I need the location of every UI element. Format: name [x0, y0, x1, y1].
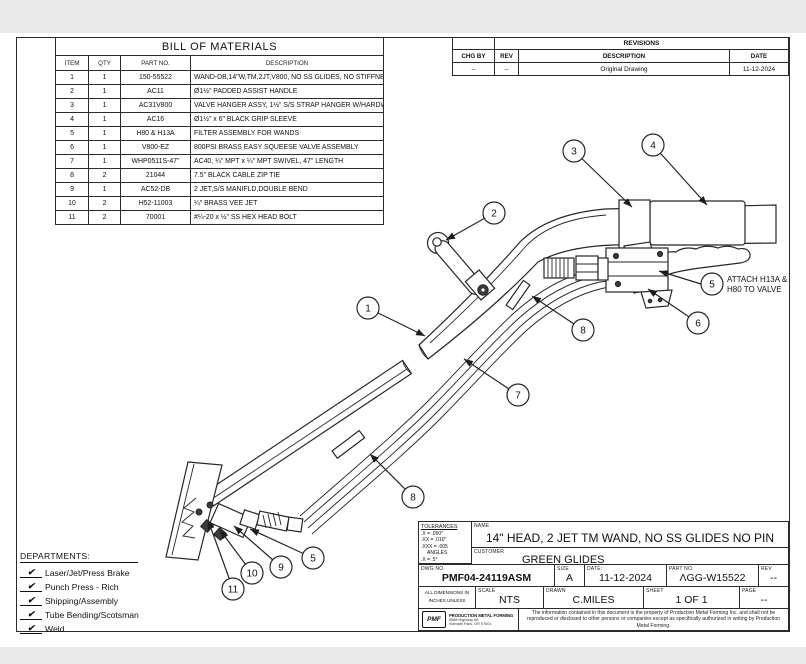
paper-sheet: 1 2 3 4 5 6 7 8 8 5 9 10 11 ATTACH H13A …	[0, 33, 806, 647]
assist-handle	[428, 233, 495, 300]
department-row: ✔Weld	[20, 621, 210, 634]
bom-cell: V800-EZ	[121, 141, 191, 155]
balloon-10: 10	[246, 569, 258, 580]
balloon-3: 3	[571, 147, 577, 158]
bom-cell: #¼-20 x ½" SS HEX HEAD BOLT	[191, 211, 384, 225]
tolerance-line: .X = .5°	[421, 557, 471, 563]
bom-cell: 1	[56, 71, 89, 85]
bom-cell: 2	[56, 85, 89, 99]
bom-cell: 800PSI BRASS EASY SQUEESE VALVE ASSEMBLY	[191, 141, 384, 155]
dims-note-line: ALL DIMENSIONS IN	[419, 590, 475, 595]
revisions-cell: --	[453, 63, 495, 76]
date-cell: DATE: 11-12-2024	[584, 564, 667, 587]
revisions-cell: Original Drawing	[519, 63, 730, 76]
bom-header-desc: DESCRIPTION	[191, 56, 384, 71]
department-row: ✔Laser/Jet/Press Brake	[20, 565, 210, 578]
tolerances-title: TOLERANCES	[421, 524, 471, 530]
bom-cell: 21044	[121, 169, 191, 183]
tolerances-cell: TOLERANCES .X = .050" .XX = .010" .XXX =…	[418, 521, 472, 564]
check-icon: ✔	[20, 568, 42, 578]
bom-cell: WHP0511S-47"	[121, 155, 191, 169]
page-cell: PAGE --	[739, 586, 789, 609]
title-block: TOLERANCES .X = .050" .XX = .010" .XXX =…	[418, 521, 789, 631]
balloon-11: 11	[228, 585, 239, 596]
attach-note-line2: H80 TO VALVE	[727, 285, 782, 294]
dims-note-line: INCHES UNLESS	[419, 598, 475, 603]
balloon-5-right: 5	[709, 280, 715, 291]
bom-cell: ¼" BRASS VEE JET	[191, 197, 384, 211]
bom-cell: AC52-DB	[121, 183, 191, 197]
balloon-9: 9	[278, 563, 284, 574]
balloon-7: 7	[515, 391, 521, 402]
check-icon: ✔	[20, 610, 42, 620]
dimensions-note-cell: ALL DIMENSIONS IN INCHES UNLESS OTHERWIS…	[418, 586, 476, 609]
bom-cell: 10	[56, 197, 89, 211]
part-no-cell: PART NO. ΛGG-W15522	[666, 564, 759, 587]
department-label: Laser/Jet/Press Brake	[45, 568, 130, 578]
drawn-cell: DRAWN C.MILES	[543, 586, 644, 609]
bom-cell: AC16	[121, 113, 191, 127]
grip-sleeve	[650, 201, 745, 245]
bom-cell: 70001	[121, 211, 191, 225]
balloon-8-mid: 8	[410, 493, 416, 504]
revisions-header-date: DATE	[730, 50, 789, 63]
bom-cell: 2	[89, 211, 121, 225]
revisions-header-desc: DESCRIPTION	[519, 50, 730, 63]
dwg-number: PMF04-24119ASM	[419, 572, 554, 584]
bom-cell: AC31V800	[121, 99, 191, 113]
bom-cell: WAND-DB,14"W,TM,2JT,V800, NO SS GLIDES, …	[191, 71, 384, 85]
rev-cell: REV --	[758, 564, 789, 587]
customer-label: CUSTOMER	[474, 549, 504, 555]
department-label: Punch Press - Rich	[45, 582, 119, 592]
bom-cell: 11	[56, 211, 89, 225]
company-logo-cell: PMF PRODUCTION METAL FORMING 8988 Highwa…	[418, 608, 519, 631]
bom-cell: 1	[89, 85, 121, 99]
sheet-value: 1 OF 1	[644, 594, 739, 606]
drawing-sheet-view: 1 2 3 4 5 6 7 8 8 5 9 10 11 ATTACH H13A …	[0, 0, 806, 664]
bom-header-item: ITEM	[56, 56, 89, 71]
department-label: Shipping/Assembly	[45, 596, 118, 606]
bom-cell: 7	[56, 155, 89, 169]
bom-cell: 4	[56, 113, 89, 127]
page-value: --	[740, 594, 788, 606]
bom-cell: 1	[89, 183, 121, 197]
bom-cell: Ø1½" PADDED ASSIST HANDLE	[191, 85, 384, 99]
bom-cell: 9	[56, 183, 89, 197]
cable-zip-tie-lower	[332, 431, 365, 459]
bom-title: BILL OF MATERIALS	[56, 38, 384, 56]
scale-value: NTS	[476, 594, 543, 606]
bom-cell: 7.5" BLACK CABLE ZIP TIE	[191, 169, 384, 183]
bom-cell: 5	[56, 127, 89, 141]
attach-note-line1: ATTACH H13A &	[727, 275, 788, 284]
bom-cell: 2	[89, 197, 121, 211]
drawn-by: C.MILES	[544, 594, 643, 606]
sheet-cell: SHEET 1 OF 1	[643, 586, 740, 609]
balloon-5-left: 5	[310, 554, 316, 565]
revisions-blank-cell	[453, 38, 495, 50]
legal-text: The information contained in this docume…	[519, 610, 788, 629]
size-value: A	[555, 572, 584, 584]
name-cell: NAME 14" HEAD, 2 JET TM WAND, NO SS GLID…	[471, 521, 789, 548]
scale-cell: SCALE NTS	[475, 586, 544, 609]
revisions-table: REVISIONS CHG BY REV DESCRIPTION DATE --…	[452, 37, 789, 76]
check-icon: ✔	[20, 624, 42, 634]
revisions-header-rev: REV	[495, 50, 519, 63]
bom-cell: 1	[89, 127, 121, 141]
bom-cell: H52-11003	[121, 197, 191, 211]
department-row: ✔Tube Bending/Scotsman	[20, 607, 210, 620]
bom-cell: 3	[56, 99, 89, 113]
bom-cell: 8	[56, 169, 89, 183]
bom-cell: FILTER ASSEMBLY FOR WANDS	[191, 127, 384, 141]
bom-cell: 1	[89, 99, 121, 113]
bom-cell: H80 & H13A	[121, 127, 191, 141]
bom-cell: 1	[89, 71, 121, 85]
bom-cell: AC11	[121, 85, 191, 99]
date-value: 11-12-2024	[585, 572, 666, 584]
valve-inlet-fittings	[544, 256, 608, 280]
balloon-2: 2	[491, 209, 497, 220]
part-number: ΛGG-W15522	[667, 572, 758, 584]
balloon-1: 1	[365, 304, 371, 315]
dwg-no-cell: DWG NO. PMF04-24119ASM	[418, 564, 555, 587]
balloon-8-upper: 8	[580, 326, 586, 337]
department-row: ✔Punch Press - Rich	[20, 579, 210, 592]
bom-cell: 1	[89, 113, 121, 127]
customer-cell: CUSTOMER GREEN GLIDES	[471, 547, 789, 565]
bom-cell: 2 JET,S/S MANIFLD,DOUBLE BEND	[191, 183, 384, 197]
bom-cell: 2	[89, 169, 121, 183]
revisions-title: REVISIONS	[495, 38, 789, 50]
bom-cell: 150-55522	[121, 71, 191, 85]
revisions-header-chgby: CHG BY	[453, 50, 495, 63]
department-label: Weld	[45, 624, 64, 634]
size-cell: SIZE A	[554, 564, 585, 587]
bom-cell: 1	[89, 155, 121, 169]
pmf-logo-icon: PMF	[422, 611, 446, 628]
bill-of-materials-table: BILL OF MATERIALS ITEM QTY PART NO. DESC…	[55, 37, 384, 225]
bom-cell: VALVE HANGER ASSY, 1½" S/S STRAP HANGER …	[191, 99, 384, 113]
department-row: ✔Shipping/Assembly	[20, 593, 210, 606]
department-label: Tube Bending/Scotsman	[45, 610, 139, 620]
balloon-6: 6	[695, 319, 701, 330]
bom-cell: Ø1½" x 6" BLACK GRIP SLEEVE	[191, 113, 384, 127]
revisions-cell: --	[495, 63, 519, 76]
rev-value: --	[759, 572, 788, 584]
wand-lower-tube	[201, 360, 412, 508]
check-icon: ✔	[20, 582, 42, 592]
bom-header-qty: QTY	[89, 56, 121, 71]
check-icon: ✔	[20, 596, 42, 606]
drawing-name: 14" HEAD, 2 JET TM WAND, NO SS GLIDES NO…	[472, 531, 788, 545]
bom-header-part: PART NO.	[121, 56, 191, 71]
bom-cell: 1	[89, 141, 121, 155]
legal-notice-cell: The information contained in this docume…	[518, 608, 789, 631]
name-label: NAME	[474, 523, 489, 529]
departments-checklist: DEPARTMENTS: ✔Laser/Jet/Press Brake ✔Pun…	[20, 546, 210, 634]
balloon-4: 4	[650, 141, 656, 152]
bom-cell: 6	[56, 141, 89, 155]
company-address: Klamath Falls, OR 97601	[449, 622, 513, 626]
revisions-cell: 11-12-2024	[730, 63, 789, 76]
departments-title: DEPARTMENTS:	[20, 551, 138, 563]
bom-cell: AC40, ¼" MPT x ¼" MPT SWIVEL, 47" LENGTH	[191, 155, 384, 169]
